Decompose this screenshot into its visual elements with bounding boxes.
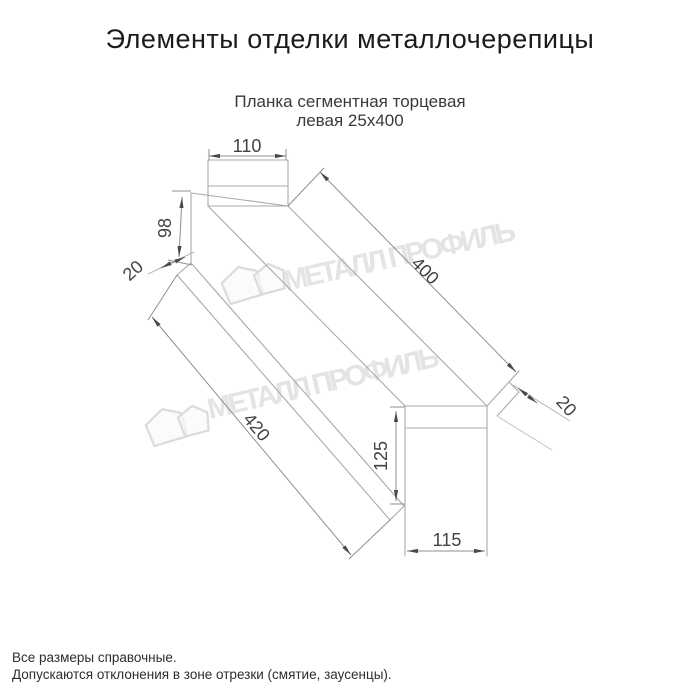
dimension-98: 98 (155, 191, 192, 265)
footnotes: Все размеры справочные. Допускаются откл… (12, 649, 392, 683)
far-end-hem (487, 371, 519, 416)
footnote-line1: Все размеры справочные. (12, 649, 392, 666)
dimension-110: 110 (209, 136, 286, 160)
dim-20-left-label: 20 (119, 256, 147, 284)
dim-110-label: 110 (233, 136, 262, 156)
dim-115-label: 115 (433, 530, 462, 550)
dimension-115: 115 (407, 530, 485, 551)
dimension-20-left: 20 (119, 252, 194, 285)
dimensions: 110 98 20 400 420 20 (119, 136, 581, 559)
watermark-text-middle: МЕТАЛЛ ПРОФИЛЬ (281, 215, 520, 298)
watermark-logo-bottom-left (143, 401, 211, 446)
technical-drawing: МЕТАЛЛ ПРОФИЛЬ МЕТАЛЛ ПРОФИЛЬ (0, 0, 700, 700)
dim-125-label: 125 (371, 441, 391, 471)
footnote-line2: Допускаются отклонения в зоне отрезки (с… (12, 666, 392, 683)
end-cap-left (177, 160, 288, 275)
dimension-20-right: 20 (497, 385, 581, 450)
profile-outline (177, 160, 519, 556)
watermark-text-bottom-left: МЕТАЛЛ ПРОФИЛЬ (204, 341, 443, 426)
dim-98-label: 98 (155, 218, 175, 238)
hem-edge-right-end (390, 506, 404, 520)
watermark-logo-middle (219, 259, 287, 304)
dimension-125: 125 (371, 407, 405, 504)
dim-20-right-label: 20 (552, 392, 580, 420)
